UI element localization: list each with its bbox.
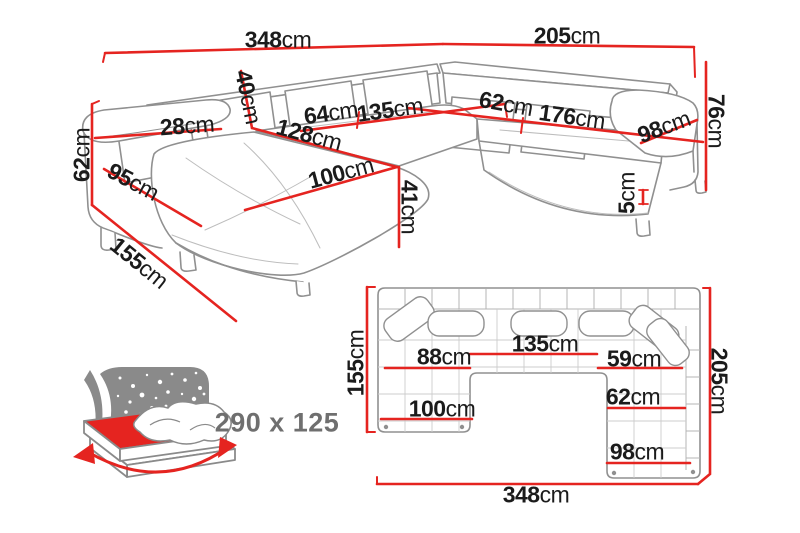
sofa-dimensions-diagram: 348cm 205cm 76cm 62cm 28cm 40cm 64cm 135… [0,0,800,533]
dim-plan-seat-98: 98cm [610,441,664,464]
sleeping-area-size: 290 x 125 [215,410,340,437]
dim-perspective-total-width: 348cm [245,29,312,52]
pillow [428,311,484,336]
dim-seat-height-41: 41cm [398,180,421,234]
dim-plan-seat-88: 88cm [417,346,471,369]
dim-armrest-height: 62cm [71,128,94,182]
dim-plan-chaise-100: 100cm [409,398,476,421]
dim-plan-right-depth-205: 205cm [708,348,731,415]
dim-armrest-width: 28cm [159,113,215,140]
dim-perspective-right-width: 205cm [534,25,601,48]
dim-plan-seat-62: 62cm [606,386,660,409]
sleeper-bed-icon [73,367,237,477]
dim-backrest-height: 76cm [705,94,728,148]
dim-plan-total-width-348: 348cm [503,484,570,507]
dim-plan-seat-59: 59cm [607,348,661,371]
dim-plan-left-depth-155: 155cm [345,330,368,397]
dim-leg-height-5: 5cm [616,172,639,214]
diagram-artwork [0,0,800,533]
pillow [579,311,634,336]
dim-plan-seat-135: 135cm [512,333,579,356]
